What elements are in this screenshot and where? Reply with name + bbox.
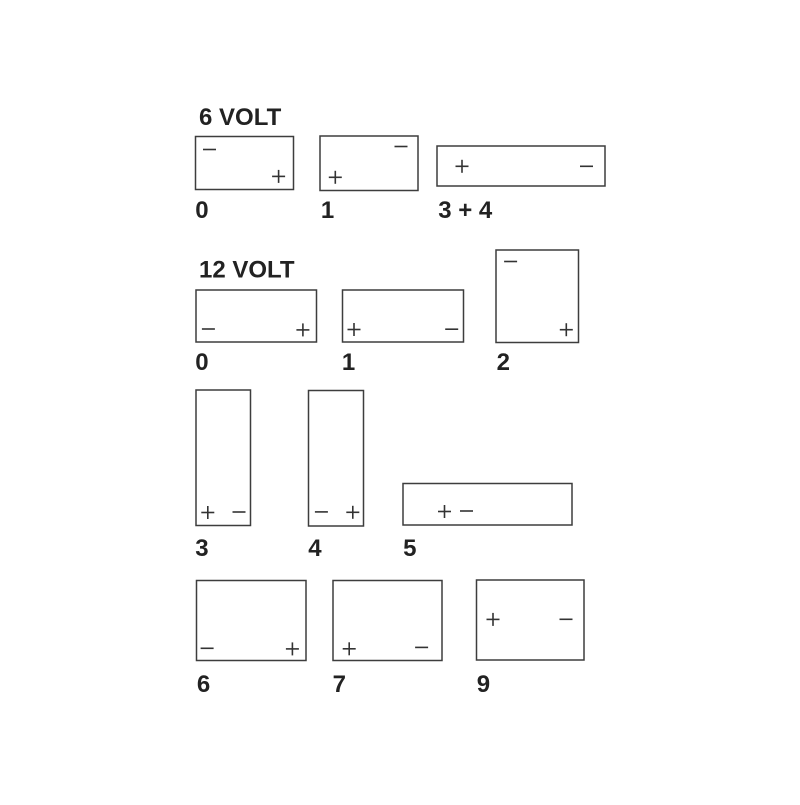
svg-text:6 VOLT: 6 VOLT	[199, 104, 282, 131]
svg-text:0: 0	[195, 349, 208, 376]
svg-text:3 + 4: 3 + 4	[438, 197, 493, 224]
svg-text:4: 4	[308, 535, 322, 562]
svg-text:6: 6	[197, 671, 210, 698]
svg-text:1: 1	[321, 197, 334, 224]
svg-text:5: 5	[403, 535, 416, 562]
svg-text:7: 7	[333, 671, 346, 698]
svg-text:2: 2	[497, 349, 510, 376]
svg-text:12 VOLT: 12 VOLT	[199, 257, 295, 284]
svg-text:1: 1	[342, 349, 355, 376]
svg-text:3: 3	[195, 535, 208, 562]
svg-text:0: 0	[195, 197, 208, 224]
svg-text:9: 9	[477, 671, 490, 698]
